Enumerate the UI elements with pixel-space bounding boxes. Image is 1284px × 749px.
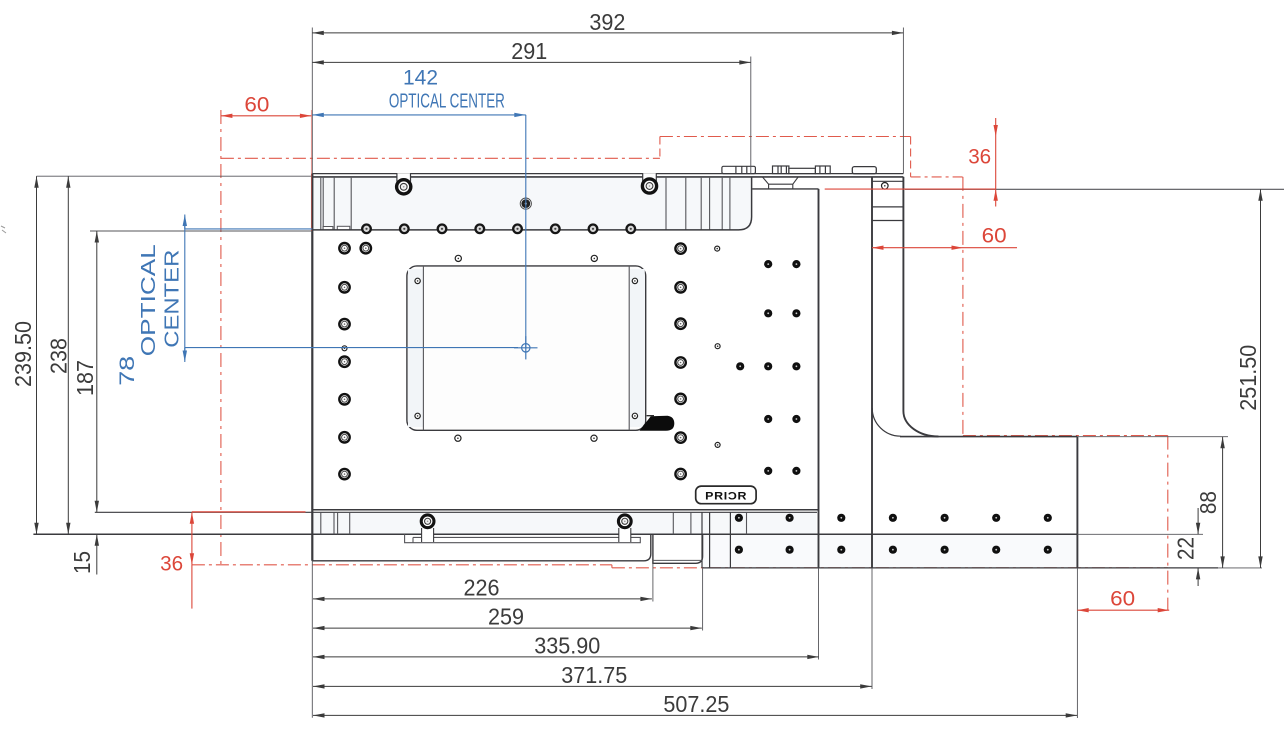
svg-text:60: 60 bbox=[244, 93, 269, 117]
svg-text:36: 36 bbox=[968, 144, 991, 168]
svg-text:60: 60 bbox=[982, 224, 1007, 248]
svg-text:60: 60 bbox=[1110, 587, 1135, 611]
svg-text:142: 142 bbox=[403, 67, 438, 90]
svg-text:259: 259 bbox=[488, 604, 524, 630]
svg-text:335.90: 335.90 bbox=[534, 632, 600, 658]
svg-text:36: 36 bbox=[160, 551, 183, 575]
svg-text:238: 238 bbox=[45, 338, 71, 374]
svg-text:187: 187 bbox=[72, 360, 98, 396]
svg-text:OPTICAL CENTER: OPTICAL CENTER bbox=[389, 90, 505, 113]
svg-text:251.50: 251.50 bbox=[1235, 345, 1261, 411]
svg-text:22: 22 bbox=[1173, 537, 1199, 560]
svg-text:78: 78 bbox=[116, 356, 139, 386]
svg-text:226: 226 bbox=[464, 574, 500, 600]
svg-text:88: 88 bbox=[1195, 491, 1221, 514]
svg-text:507.25: 507.25 bbox=[663, 691, 729, 717]
svg-text:PRIƆR: PRIƆR bbox=[705, 491, 747, 503]
svg-text:OPTICAL: OPTICAL bbox=[137, 244, 160, 356]
svg-text:392: 392 bbox=[589, 9, 625, 35]
svg-text:CENTER: CENTER bbox=[161, 250, 184, 348]
svg-text:239.50: 239.50 bbox=[10, 321, 36, 387]
svg-text:291: 291 bbox=[511, 38, 547, 64]
svg-text:15: 15 bbox=[69, 551, 95, 574]
svg-text:371.75: 371.75 bbox=[561, 662, 627, 688]
